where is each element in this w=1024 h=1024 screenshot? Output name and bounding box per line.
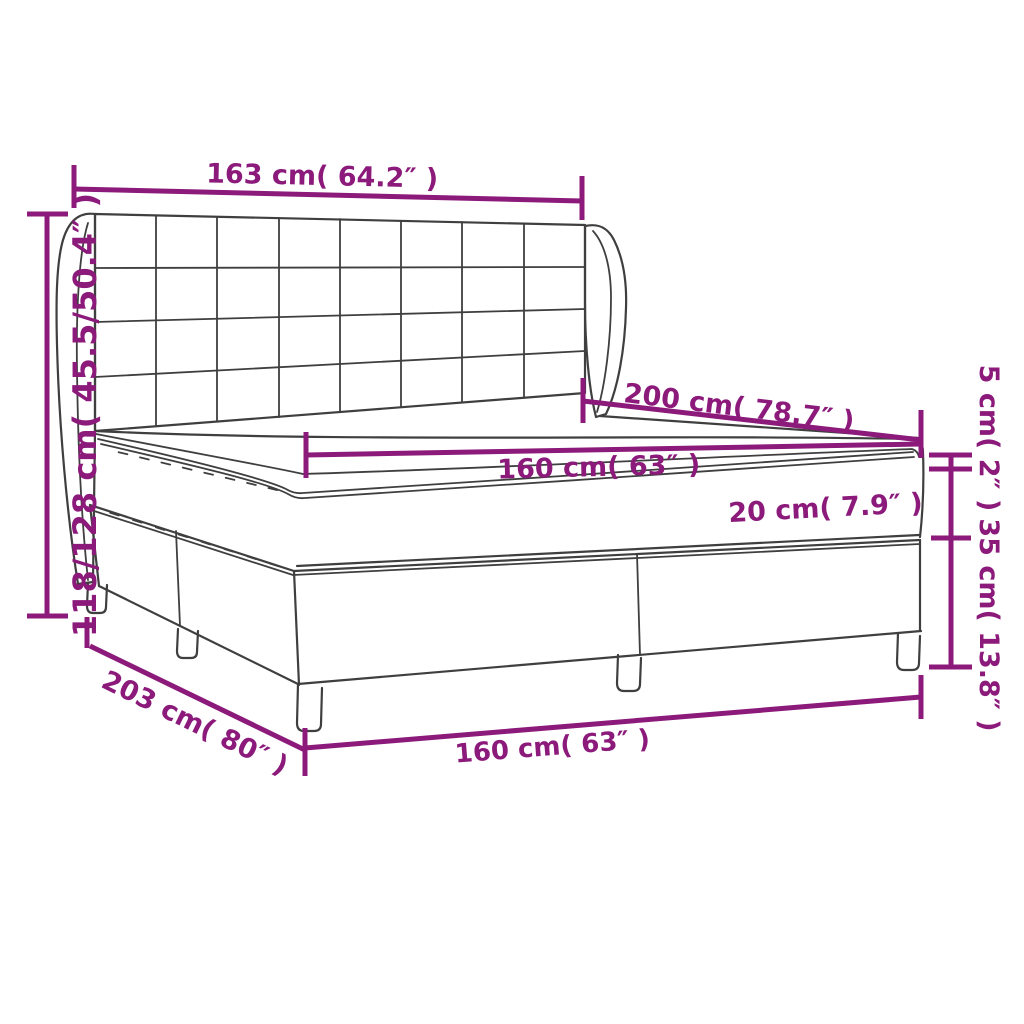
diagram-canvas: 163 cm( 64.2″ ) 118/128 cm( 45.5/50.4″ )… <box>0 0 1024 1024</box>
dim-base-height-label: 35 cm( 13.8″ ) <box>973 518 1004 731</box>
dim-length-label: 200 cm( 78.7″ ) <box>622 378 856 437</box>
bed-leg-4 <box>617 655 641 691</box>
dim-mattress-thickness-label: 20 cm( 7.9″ ) <box>728 488 924 529</box>
bed-leg-5 <box>897 633 920 670</box>
right-wing-crease <box>593 231 611 412</box>
base-front-corner-edge <box>294 571 299 685</box>
dim-headboard-width-label: 163 cm( 64.2″ ) <box>206 158 439 194</box>
dim-topper-thickness-label: 5 cm( 2″ ) <box>973 365 1004 512</box>
bed-leg-3 <box>297 684 322 731</box>
base-front-panel-seam <box>637 554 640 655</box>
dim-mattress-width-label: 160 cm( 63″ ) <box>497 449 701 485</box>
dim-total-length-label: 203 cm( 80″ ) <box>97 665 293 782</box>
bed-drawing <box>57 214 924 731</box>
headboard-grid-vertical-lines <box>156 216 524 426</box>
base-left-panel-seam <box>176 531 180 626</box>
dimension-labels: 163 cm( 64.2″ ) 118/128 cm( 45.5/50.4″ )… <box>66 158 1004 781</box>
bed-dimension-diagram: 163 cm( 64.2″ ) 118/128 cm( 45.5/50.4″ )… <box>0 0 1024 1024</box>
mattress-seam-stitch-dashes <box>119 452 278 490</box>
base-bottom-edge <box>99 586 921 684</box>
mattress-bottom-edge <box>297 535 919 566</box>
dim-height-label: 118/128 cm( 45.5/50.4″ ) <box>66 193 104 637</box>
